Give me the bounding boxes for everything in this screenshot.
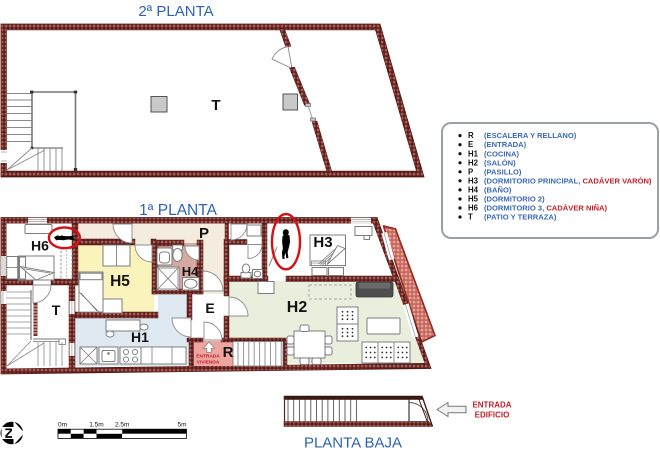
svg-text:PLANTA BAJA: PLANTA BAJA (304, 435, 402, 451)
svg-text:E: E (468, 140, 473, 149)
svg-text:(PASILLO): (PASILLO) (484, 167, 522, 176)
svg-text:(ESCALERA Y RELLANO): (ESCALERA Y RELLANO) (484, 131, 577, 140)
svg-text:(BAÑO): (BAÑO) (484, 186, 512, 195)
svg-text:EDIFICIO: EDIFICIO (475, 411, 510, 420)
svg-text:T: T (52, 302, 61, 318)
svg-text:(DORMITORIO 3, CADÁVER NIÑA): (DORMITORIO 3, CADÁVER NIÑA) (484, 204, 608, 213)
svg-text:5m: 5m (177, 422, 186, 429)
svg-text:H1: H1 (131, 329, 149, 345)
svg-text:R: R (223, 344, 234, 361)
svg-text:T: T (211, 97, 220, 114)
svg-text:(COCINA): (COCINA) (484, 149, 519, 158)
svg-text:(DORMITORIO PRINCIPAL, CADÁVER: (DORMITORIO PRINCIPAL, CADÁVER VARÓN) (484, 176, 652, 185)
svg-text:H5: H5 (468, 195, 479, 204)
svg-text:H3: H3 (468, 176, 479, 185)
svg-text:H2: H2 (287, 299, 308, 316)
svg-text:VIVIENDA: VIVIENDA (197, 360, 220, 366)
svg-text:1.5m: 1.5m (89, 422, 103, 429)
svg-text:T: T (468, 213, 473, 222)
svg-text:0m: 0m (58, 422, 67, 429)
svg-text:ENTRADA: ENTRADA (196, 354, 220, 360)
svg-text:P: P (468, 167, 473, 176)
svg-text:P: P (199, 225, 209, 242)
svg-text:H2: H2 (468, 158, 479, 167)
svg-text:(PATIO Y TERRAZA): (PATIO Y TERRAZA) (484, 213, 557, 222)
svg-text:1ª PLANTA: 1ª PLANTA (139, 202, 217, 219)
svg-text:R: R (468, 131, 474, 140)
svg-text:(DORMITORIO 2): (DORMITORIO 2) (484, 195, 545, 204)
svg-text:H6: H6 (468, 204, 479, 213)
svg-text:E: E (205, 300, 214, 316)
svg-text:(SALÓN): (SALÓN) (484, 158, 516, 167)
svg-text:H5: H5 (110, 273, 130, 290)
svg-text:H4: H4 (182, 264, 199, 279)
svg-text:H3: H3 (313, 234, 332, 251)
svg-text:(ENTRADA): (ENTRADA) (484, 140, 527, 149)
svg-text:H1: H1 (468, 149, 479, 158)
svg-text:2ª PLANTA: 2ª PLANTA (138, 3, 213, 20)
svg-text:ENTRADA: ENTRADA (472, 401, 511, 410)
svg-text:2.5m: 2.5m (115, 422, 129, 429)
svg-text:H4: H4 (468, 186, 479, 195)
svg-text:H6: H6 (31, 238, 49, 254)
